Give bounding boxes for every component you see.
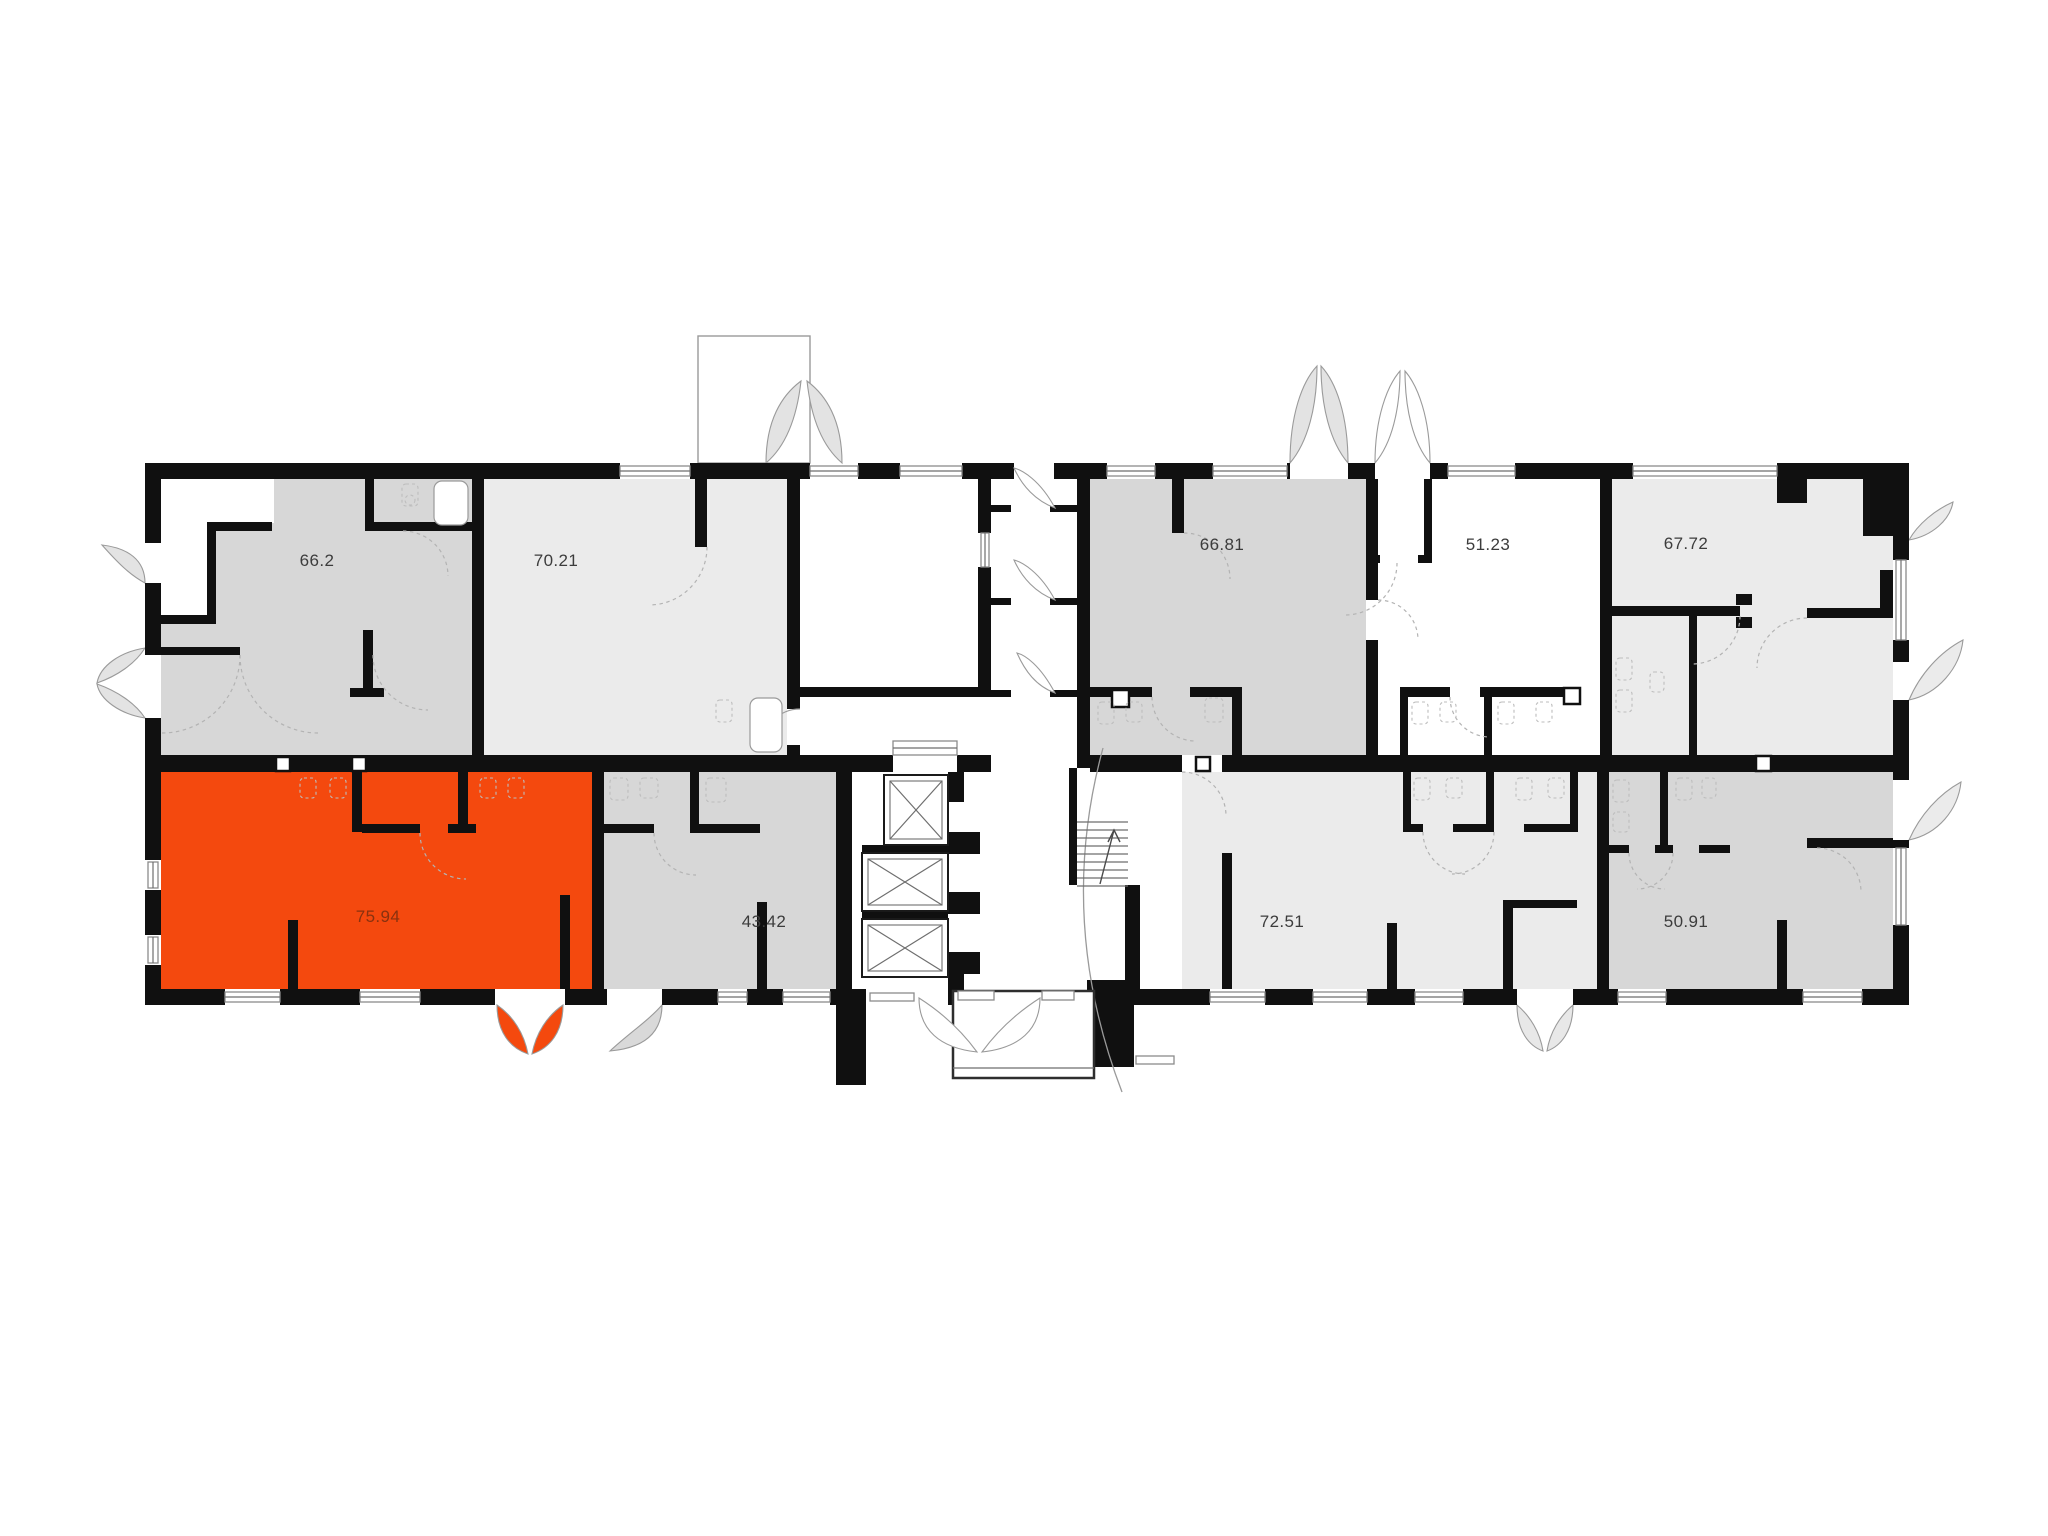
window-vertical	[148, 862, 158, 888]
room-unit-70-21	[484, 479, 787, 755]
door-leaf-left-lower	[97, 684, 145, 718]
room-fills[interactable]	[161, 479, 1893, 989]
area-label-43-42: 43.42	[742, 912, 787, 931]
window	[225, 992, 280, 1002]
door-leaf-right-bottom	[1909, 782, 1961, 840]
window	[360, 992, 420, 1002]
window	[1415, 992, 1463, 1002]
floor-plan-canvas: 66.2 70.21 66.81 51.23 67.72 75.94 43.42…	[0, 0, 2048, 1536]
room-unit-66-81	[1090, 479, 1366, 755]
door-leaf-right-mid	[1909, 640, 1963, 700]
area-label-51-23: 51.23	[1466, 535, 1511, 554]
window-sill	[1042, 991, 1074, 1000]
area-label-67-72: 67.72	[1664, 534, 1709, 553]
window	[1213, 466, 1287, 476]
elevator-core	[862, 775, 948, 977]
staircase	[1077, 822, 1128, 886]
window-vertical	[148, 937, 158, 963]
bay-door-leaf-r	[807, 381, 842, 463]
highlight-entry-door-r	[532, 1005, 563, 1054]
bathtub	[434, 481, 468, 525]
area-label-66-81: 66.81	[1200, 535, 1245, 554]
area-label-50-91: 50.91	[1664, 912, 1709, 931]
highlight-entry-door-l	[497, 1005, 528, 1054]
window-vertical	[981, 533, 989, 567]
window-vertical	[1896, 848, 1906, 925]
tulip-door-white-r	[1405, 371, 1430, 463]
door-leaf-right-top	[1909, 502, 1953, 540]
door-leaf-left-single	[102, 545, 145, 583]
window	[1448, 466, 1515, 476]
window-sill	[958, 991, 994, 1000]
window	[1313, 992, 1367, 1002]
window	[1210, 992, 1265, 1002]
window	[1107, 466, 1155, 476]
room-unit-50-91	[1609, 772, 1893, 989]
entry-door-72-51-r	[1547, 1005, 1573, 1051]
tulip-door-gray-l	[1290, 366, 1317, 463]
area-label-70-21: 70.21	[534, 551, 579, 570]
room-white-center	[800, 479, 978, 687]
bathtub	[750, 698, 782, 752]
elevator-1	[884, 775, 948, 845]
window-sill	[1136, 1056, 1174, 1064]
elevator-3	[862, 919, 948, 977]
window	[1803, 992, 1862, 1002]
floor-plan-page: 66.2 70.21 66.81 51.23 67.72 75.94 43.42…	[0, 0, 2048, 1536]
window-vertical	[1896, 560, 1906, 640]
room-unit-43-42	[604, 772, 836, 989]
window	[620, 466, 690, 476]
window	[810, 466, 858, 476]
entry-door-72-51-l	[1517, 1005, 1543, 1051]
window	[900, 466, 962, 476]
area-label-66-2: 66.2	[300, 551, 335, 570]
area-label-75-94-highlighted: 75.94	[356, 907, 401, 926]
tulip-door-white-l	[1375, 371, 1400, 463]
door-leaf-left-upper	[97, 648, 145, 683]
area-label-72-51: 72.51	[1260, 912, 1305, 931]
entry-door-43-42	[610, 1005, 662, 1051]
elevator-2	[862, 853, 948, 911]
window	[783, 992, 830, 1002]
window	[718, 992, 747, 1002]
window	[1633, 466, 1777, 476]
window-box	[893, 741, 957, 755]
window-sill	[870, 993, 914, 1001]
connector-door-leaves	[1014, 468, 1055, 693]
window	[1618, 992, 1666, 1002]
room-unit-75-94-highlight	[161, 772, 592, 989]
tulip-door-gray-r	[1321, 366, 1348, 463]
